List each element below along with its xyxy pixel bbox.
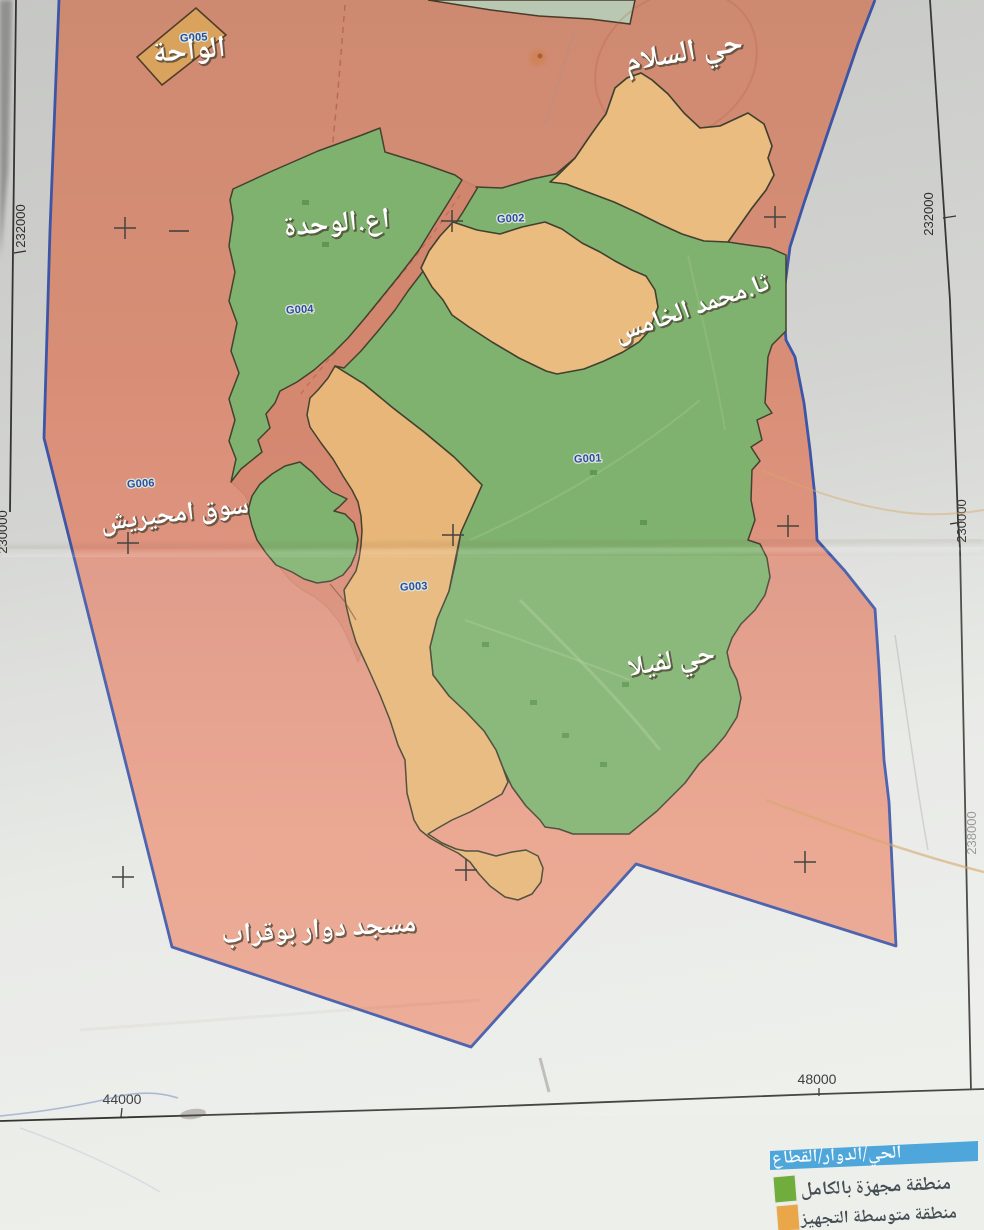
svg-text:232000: 232000 (13, 204, 28, 247)
svg-text:G006: G006 (127, 477, 155, 490)
svg-text:232000: 232000 (921, 192, 936, 235)
svg-text:G004: G004 (286, 303, 315, 316)
svg-text:G001: G001 (574, 452, 602, 465)
svg-text:G002: G002 (497, 212, 525, 225)
svg-text:G003: G003 (400, 580, 428, 593)
